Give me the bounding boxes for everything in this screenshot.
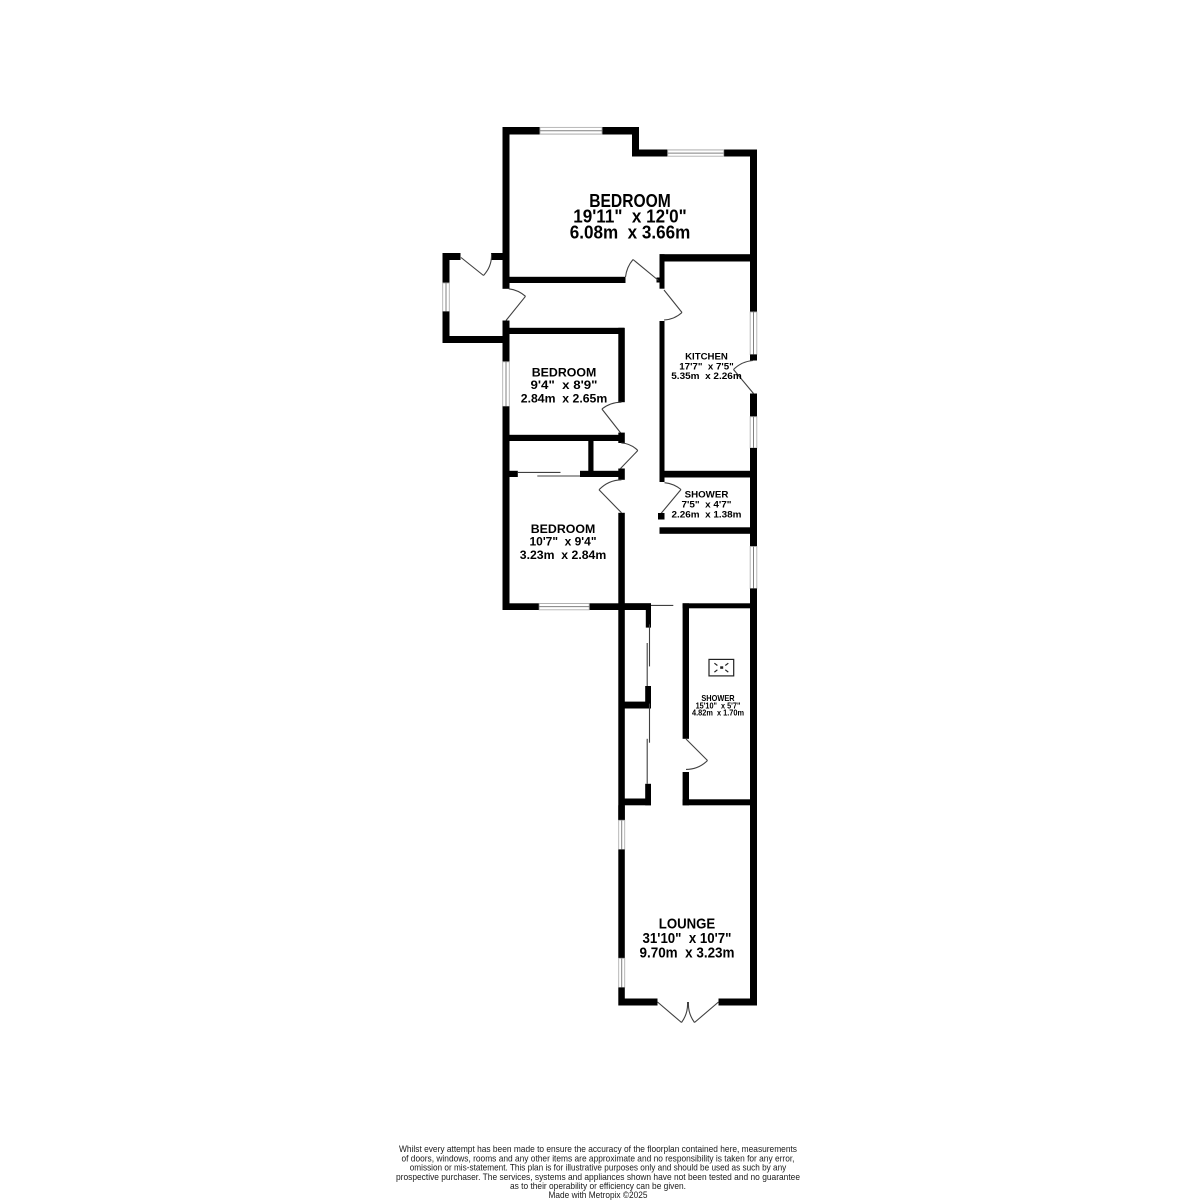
svg-text:6.08m x 3.66m: 6.08m x 3.66m [570, 223, 691, 243]
svg-text:2.84m x 2.65m: 2.84m x 2.65m [521, 392, 608, 406]
svg-text:4.82m x 1.70m: 4.82m x 1.70m [692, 709, 744, 718]
svg-text:9.70m x 3.23m: 9.70m x 3.23m [640, 945, 735, 961]
svg-text:10'7" x 9'4": 10'7" x 9'4" [530, 535, 597, 549]
svg-text:2.26m x 1.38m: 2.26m x 1.38m [672, 510, 742, 521]
svg-text:9'4" x 8'9": 9'4" x 8'9" [531, 378, 598, 392]
svg-text:Made with Metropix ©2025: Made with Metropix ©2025 [549, 1190, 648, 1200]
svg-text:3.23m x 2.84m: 3.23m x 2.84m [520, 548, 607, 562]
svg-text:5.35m x 2.26m: 5.35m x 2.26m [671, 371, 742, 382]
